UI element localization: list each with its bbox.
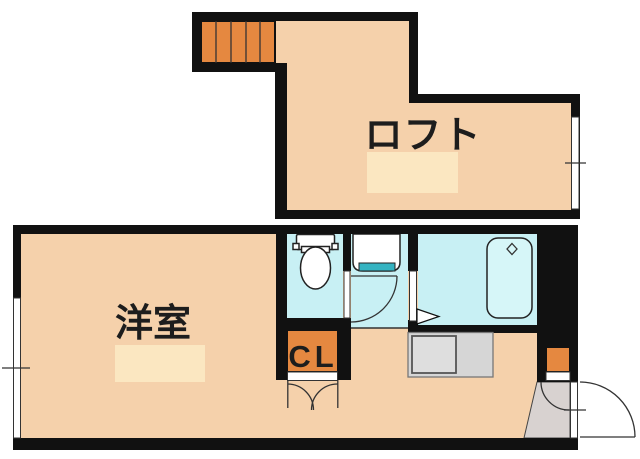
kitchen-counter-icon — [408, 333, 493, 378]
loft-wall-top — [192, 12, 418, 21]
washroom-bath-wall — [408, 225, 418, 271]
floor-plan-drawing: ロフト — [0, 0, 640, 459]
loft-wall-under-stairs — [192, 63, 287, 72]
loft-wall-mid-vertical — [275, 63, 287, 219]
western-room-label-highlight — [115, 345, 205, 382]
closet-right-wall — [338, 330, 351, 380]
toilet-bottom-wall — [276, 318, 351, 330]
bathtub-icon — [487, 238, 532, 318]
main-wall-bottom — [13, 438, 578, 450]
western-room-label: 洋室 — [115, 302, 191, 345]
main-unit: CL 洋室 — [2, 225, 635, 450]
loft-wall-step-vertical — [409, 12, 418, 103]
room-divider-wall — [276, 225, 287, 380]
bathroom-door-opening — [410, 271, 417, 321]
shoe-cabinet-strip — [546, 372, 570, 381]
loft-label: ロフト — [364, 115, 481, 157]
shoe-cabinet-icon — [546, 347, 570, 372]
toilet-door-opening — [344, 271, 350, 318]
toilet-washroom-wall — [343, 225, 351, 271]
loft-label-highlight — [367, 152, 458, 193]
floor-plan: ロフト — [0, 0, 640, 459]
loft-unit: ロフト — [192, 12, 586, 219]
loft-wall-bottom — [275, 210, 580, 219]
closet-label: CL — [288, 339, 337, 374]
bathroom-bottom-wall — [408, 325, 537, 333]
main-wall-top — [13, 225, 578, 234]
loft-wall-step-horizontal — [409, 94, 580, 103]
washbasin-icon — [353, 234, 400, 271]
stairs-icon — [201, 21, 275, 63]
